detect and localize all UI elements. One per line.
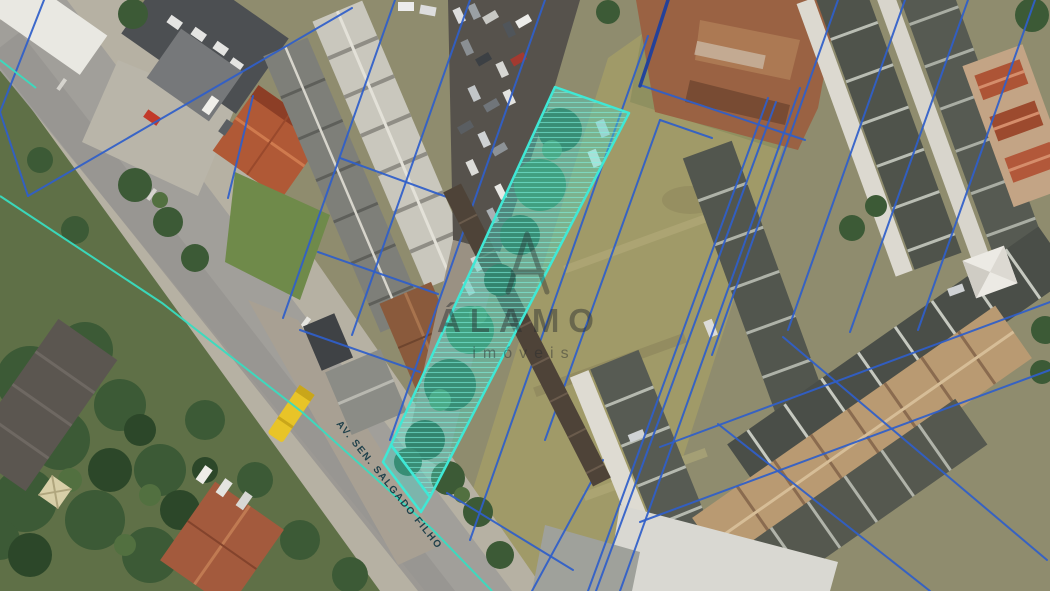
aerial-map-image: AV. SEN. SALGADO FILHO ÁLAMO imóveis: [0, 0, 1050, 591]
watermark-brand: ÁLAMO: [437, 302, 603, 339]
watermark-tagline: imóveis: [472, 345, 575, 362]
